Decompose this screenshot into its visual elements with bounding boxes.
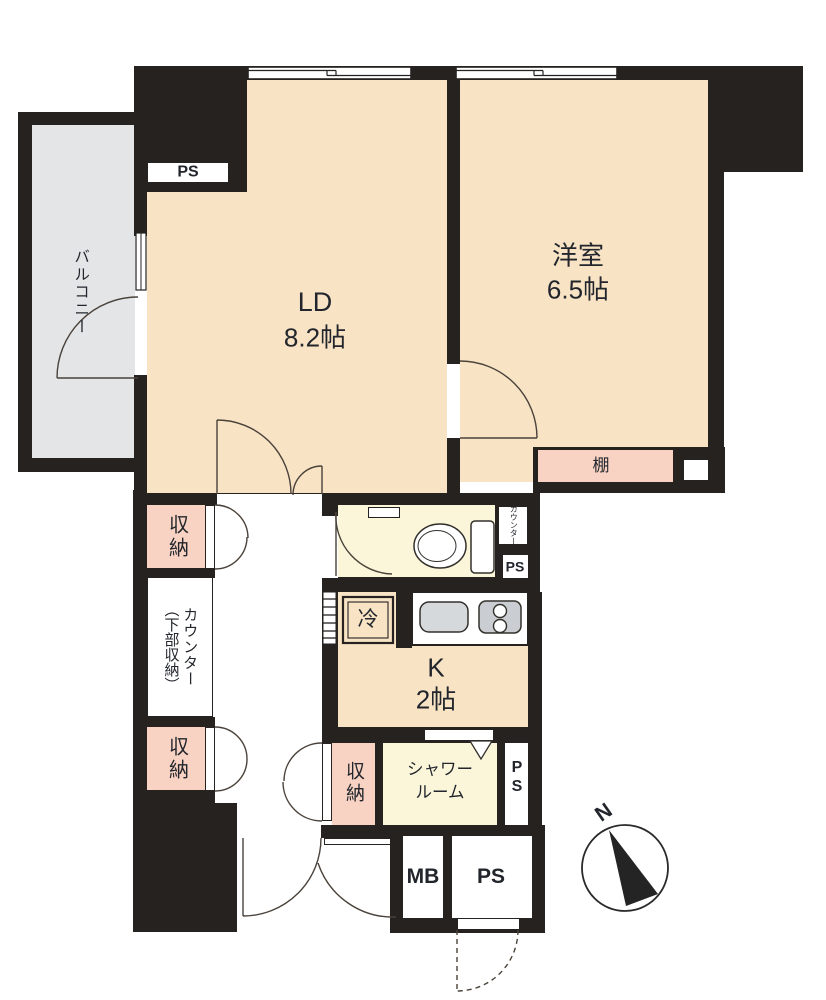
- ld-size-label: 8.2帖: [284, 324, 346, 351]
- counter-storage-sub: （下部収納）: [163, 602, 179, 692]
- storage-1-door-swing-icon: [215, 505, 248, 569]
- window-western-icon: [456, 67, 617, 79]
- shower-label-line1: シャワー: [407, 761, 473, 778]
- compass: [582, 825, 668, 911]
- western-size-label: 6.5帖: [547, 276, 609, 303]
- shower-door-marker-icon: [470, 741, 492, 759]
- ps-toilet-label: PS: [506, 560, 525, 575]
- shelf-label: 棚: [593, 457, 610, 475]
- fridge-label: 冷: [358, 609, 379, 631]
- hatch-strip-icon: [323, 592, 336, 644]
- kitchen-counter: [412, 592, 528, 645]
- kitchen-label: K: [427, 654, 444, 681]
- storage-3-door-swing-icon: [283, 743, 322, 821]
- floor-plan: バルコニー PS LD 8.2帖 洋室 6.5帖 棚 収納 収納 収納 （下部収…: [0, 0, 826, 1000]
- mb-label: MB: [407, 866, 440, 888]
- plan-line-overlay: [0, 0, 826, 1000]
- north-needle-icon: [609, 830, 658, 906]
- ps-entrance-label: PS: [477, 866, 505, 888]
- window-balcony-icon: [136, 233, 146, 290]
- toilet-door-icon: [336, 512, 392, 576]
- balcony-label: バルコニー: [72, 248, 88, 336]
- western-door-icon: [460, 361, 537, 438]
- ld-door-icon: [217, 420, 322, 495]
- sink-icon: [420, 602, 468, 632]
- balcony-door-icon: [57, 297, 138, 378]
- ld-label: LD: [298, 288, 333, 316]
- western-label: 洋室: [552, 242, 604, 269]
- ps-top-label: PS: [177, 165, 198, 182]
- counter-storage-main: カウンター: [182, 607, 198, 687]
- entrance-door-icon: [243, 838, 396, 917]
- shower-label-line2: ルーム: [415, 784, 464, 801]
- toilet-fixture-icon: [414, 521, 494, 573]
- storage-2-label: 収納: [166, 736, 187, 782]
- ps-shower-label: PS: [508, 759, 525, 797]
- storage-2-door-swing-icon: [215, 727, 247, 791]
- exterior-door-dashed-icon: [457, 930, 518, 991]
- counter-small-label: カウンター: [509, 505, 517, 545]
- window-ld-icon: [248, 67, 411, 79]
- storage-1-label: 収納: [166, 514, 187, 560]
- storage-3-label: 収納: [343, 761, 363, 805]
- kitchen-size-label: 2帖: [416, 686, 456, 713]
- counter-storage-label: （下部収納） カウンター: [163, 602, 198, 692]
